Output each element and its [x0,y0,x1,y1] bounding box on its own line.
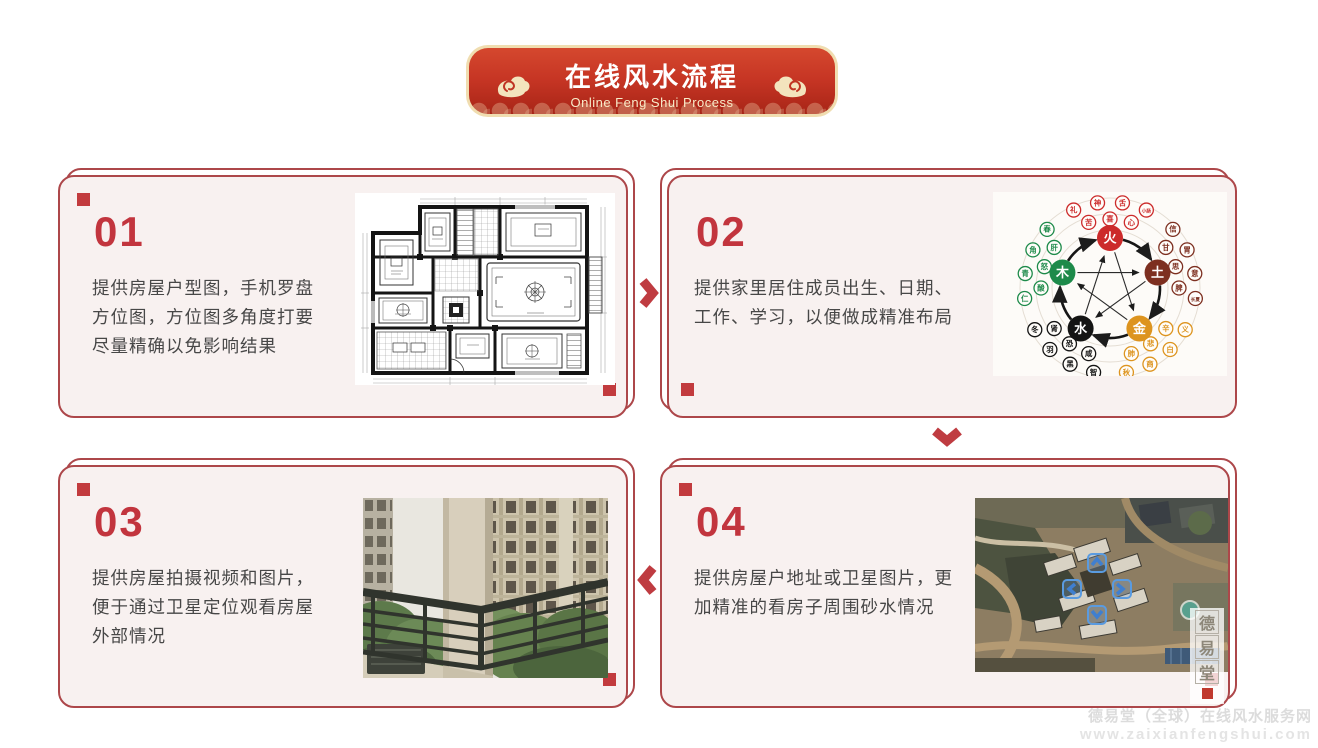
svg-text:白: 白 [1166,345,1173,354]
step-number: 04 [696,498,747,546]
flow-arrow-down-icon [928,424,966,450]
svg-text:水: 水 [1074,321,1088,336]
svg-text:黑: 黑 [1066,360,1074,369]
svg-text:义: 义 [1181,325,1190,334]
text-line: 方位图，方位图多角度打要 [92,303,314,332]
floor-plan-image [355,193,615,385]
svg-text:怒: 怒 [1041,262,1049,271]
svg-text:辛: 辛 [1162,324,1170,333]
svg-text:酸: 酸 [1037,283,1045,292]
header-banner: 在线风水流程 Online Feng Shui Process [466,45,838,117]
text-line: 提供房屋户地址或卫星图片，更 [694,564,953,593]
step-description: 提供家里居住成员出生、日期、 工作、学习，以便做成精准布局 [694,274,953,332]
svg-text:咸: 咸 [1085,349,1093,358]
svg-text:心: 心 [1128,218,1136,227]
step-number: 01 [94,208,145,256]
seal-character: 堂 [1195,660,1219,684]
site-watermark: 德易堂（全球）在线风水服务网 www.zaixianfengshui.com [1080,705,1312,743]
seal-red-square [1202,688,1213,699]
svg-text:羽: 羽 [1046,345,1053,354]
corner-square-ornament [77,193,90,206]
svg-text:肺: 肺 [1128,349,1136,358]
svg-text:角: 角 [1029,245,1036,254]
seal-character: 德 [1195,610,1219,634]
svg-text:舌: 舌 [1119,198,1127,207]
step-description: 提供房屋拍摄视频和图片， 便于通过卫星定位观看房屋 外部情况 [92,564,314,651]
floor-plan-svg [355,193,615,385]
svg-text:木: 木 [1055,265,1070,280]
step-description: 提供房屋户地址或卫星图片，更 加精准的看房子周围砂水情况 [694,564,953,622]
svg-text:青: 青 [1022,269,1030,278]
svg-text:喜: 喜 [1106,214,1114,223]
svg-text:思: 思 [1172,262,1180,271]
text-line: 加精准的看房子周围砂水情况 [694,593,953,622]
text-line: 提供房屋拍摄视频和图片， [92,564,314,593]
text-line: 工作、学习，以便做成精准布局 [694,303,953,332]
svg-text:智: 智 [1089,368,1097,376]
site-watermark-name: 德易堂（全球）在线风水服务网 [1080,705,1312,726]
svg-text:信: 信 [1169,225,1177,234]
text-line: 外部情况 [92,622,314,651]
flow-arrow-left-icon [636,562,660,598]
svg-text:秋: 秋 [1122,368,1131,376]
svg-text:悲: 悲 [1147,339,1155,348]
step-card-04: 04 提供房屋户地址或卫星图片，更 加精准的看房子周围砂水情况 [660,458,1237,708]
page: 在线风水流程 Online Feng Shui Process 01 提供房屋户… [0,0,1318,748]
step-description: 提供房屋户型图，手机罗盘 方位图，方位图多角度打要 尽量精确以免影响结果 [92,274,314,361]
nav-arrow-down-icon [1088,606,1106,624]
svg-text:肾: 肾 [1050,324,1058,333]
corner-square-ornament [77,483,90,496]
text-line: 提供家里居住成员出生、日期、 [694,274,953,303]
text-line: 尽量精确以免影响结果 [92,332,314,361]
nav-arrow-right-icon [1113,580,1131,598]
svg-text:甘: 甘 [1162,243,1170,252]
svg-text:苦: 苦 [1085,218,1093,227]
svg-text:长夏: 长夏 [1191,296,1201,303]
five-elements-image: 苦喜心礼神舌小肠甘思脾信胃意长夏辛悲肺义白商秋咸恐肾智黑羽冬酸怒肝仁青角春火土金… [993,192,1227,376]
nav-arrow-up-icon [1088,554,1106,572]
corner-square-ornament [681,383,694,396]
step-card-03: 03 提供房屋拍摄视频和图片， 便于通过卫星定位观看房屋 外部情况 [58,458,635,708]
svg-text:脾: 脾 [1174,283,1183,292]
step-number: 02 [696,208,747,256]
svg-text:胃: 胃 [1183,245,1190,254]
svg-text:土: 土 [1151,265,1164,280]
svg-text:金: 金 [1132,321,1147,336]
five-elements-svg: 苦喜心礼神舌小肠甘思脾信胃意长夏辛悲肺义白商秋咸恐肾智黑羽冬酸怒肝仁青角春火土金… [993,192,1227,376]
svg-text:恐: 恐 [1066,339,1074,348]
nav-arrow-left-icon [1063,580,1081,598]
step-card-02: 02 提供家里居住成员出生、日期、 工作、学习，以便做成精准布局 苦喜心礼神舌小… [660,168,1237,418]
step-card-01: 01 提供房屋户型图，手机罗盘 方位图，方位图多角度打要 尽量精确以免影响结果 [58,168,635,418]
banner-body: 在线风水流程 Online Feng Shui Process [469,48,835,114]
svg-text:火: 火 [1103,231,1117,246]
cloud-pattern-strip [469,98,835,114]
svg-text:肝: 肝 [1050,243,1058,252]
svg-text:春: 春 [1042,225,1051,234]
svg-text:礼: 礼 [1070,205,1078,214]
seal-watermark: 德 易 堂 [1190,608,1224,704]
svg-text:冬: 冬 [1031,325,1039,334]
svg-text:神: 神 [1094,198,1101,207]
page-title: 在线风水流程 [469,57,835,94]
balcony-photo-svg [363,498,608,678]
balcony-photo-image [363,498,608,678]
site-watermark-url: www.zaixianfengshui.com [1080,726,1312,743]
step-number: 03 [94,498,145,546]
flow-arrow-right-icon [636,275,660,311]
text-line: 便于通过卫星定位观看房屋 [92,593,314,622]
svg-text:小肠: 小肠 [1142,207,1152,214]
seal-character: 易 [1195,635,1219,659]
svg-text:商: 商 [1146,360,1154,369]
svg-text:意: 意 [1191,269,1199,278]
svg-text:仁: 仁 [1021,294,1029,303]
text-line: 提供房屋户型图，手机罗盘 [92,274,314,303]
corner-square-ornament [679,483,692,496]
